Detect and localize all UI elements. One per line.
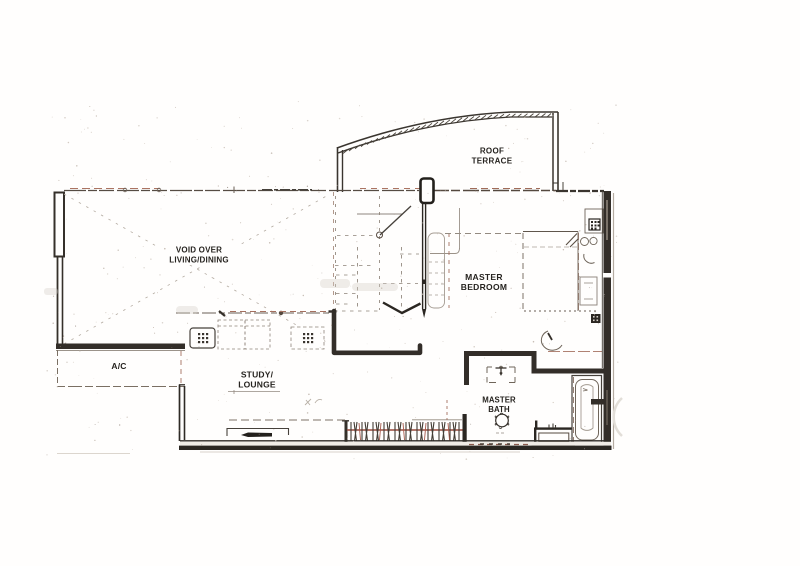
- svg-text:A/C: A/C: [111, 361, 126, 371]
- svg-text:TERRACE: TERRACE: [472, 157, 513, 166]
- svg-text:VOID OVER: VOID OVER: [176, 246, 222, 255]
- svg-text:LIVING/DINING: LIVING/DINING: [169, 256, 229, 265]
- svg-text:BEDROOM: BEDROOM: [461, 282, 508, 292]
- svg-text:LOUNGE: LOUNGE: [238, 380, 276, 390]
- svg-text:MASTER: MASTER: [465, 272, 503, 282]
- svg-text:STUDY/: STUDY/: [241, 370, 274, 380]
- svg-text:MASTER: MASTER: [482, 396, 516, 405]
- svg-text:ROOF: ROOF: [480, 147, 504, 156]
- svg-text:BATH: BATH: [488, 405, 510, 414]
